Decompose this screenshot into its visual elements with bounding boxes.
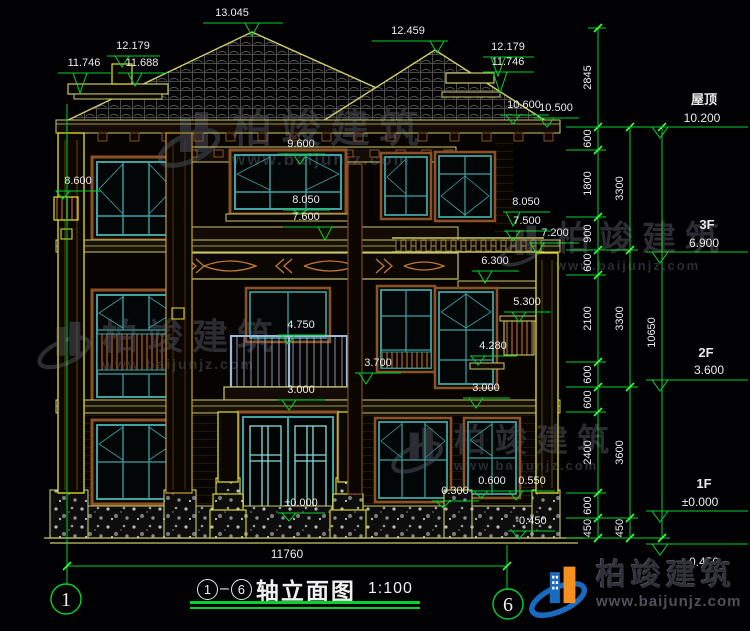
floor-level-marker bbox=[646, 544, 748, 555]
company-name: 柏竣建筑 bbox=[596, 560, 741, 592]
chain-dim: 600 bbox=[582, 129, 594, 147]
elevation-marker: 12.459 bbox=[372, 25, 448, 53]
floor-elevation: ±0.000 bbox=[682, 495, 719, 509]
title-axis-start-bubble: 1 bbox=[197, 579, 218, 600]
elevation-value: 12.179 bbox=[116, 40, 150, 52]
window-1f-center-right bbox=[375, 418, 451, 502]
elevation-value: 13.045 bbox=[215, 7, 249, 19]
title-dash: – bbox=[220, 580, 229, 598]
elevation-value: 7.200 bbox=[541, 227, 569, 239]
elevation-value: 7.600 bbox=[292, 211, 320, 223]
elevation-value: 5.300 bbox=[513, 296, 541, 308]
chain-dim: 2845 bbox=[582, 65, 594, 89]
chain-dim: 1800 bbox=[582, 171, 594, 195]
elevation-value: 0.300 bbox=[441, 485, 469, 497]
elevation-value: 9.600 bbox=[287, 138, 315, 150]
elevation-canvas: 13.04512.45912.17911.74611.68812.17911.7… bbox=[0, 0, 750, 631]
elevation-value: 12.459 bbox=[391, 25, 425, 37]
floor-label: 屋顶 bbox=[691, 92, 717, 107]
company-logo: 柏竣建筑 www.baijunjz.com bbox=[528, 560, 741, 628]
overall-dim: 11760 bbox=[271, 547, 304, 561]
chain-dim: 600 bbox=[582, 390, 594, 408]
elevation-value: 4.750 bbox=[287, 319, 315, 331]
door-pilaster-left bbox=[218, 412, 238, 482]
chain-dim: 450 bbox=[614, 519, 626, 537]
chain-dim: 600 bbox=[582, 365, 594, 383]
elevation-value: 8.050 bbox=[512, 196, 540, 208]
elevation-value: 0.550 bbox=[518, 475, 546, 487]
elevation-value: -0.450 bbox=[515, 515, 546, 527]
elevation-value: 4.280 bbox=[479, 340, 507, 352]
floor-elevation: 10.200 bbox=[684, 111, 721, 125]
window-3f-center-right bbox=[381, 153, 431, 219]
elevation-value: 3.000 bbox=[472, 382, 500, 394]
chain-dim: 2100 bbox=[582, 306, 594, 330]
chain-dim: 10650 bbox=[646, 317, 658, 348]
floor-label: 3F bbox=[699, 217, 714, 232]
floor-elevation: 6.900 bbox=[689, 236, 719, 250]
title-axis-end-bubble: 6 bbox=[231, 579, 252, 600]
ground-line bbox=[44, 538, 584, 543]
chain-dim: 600 bbox=[582, 496, 594, 514]
elevation-value: 8.050 bbox=[292, 194, 320, 206]
elevation-value: 7.500 bbox=[513, 215, 541, 227]
floor-level-marker bbox=[646, 511, 748, 522]
axis-number: 1 bbox=[61, 589, 71, 611]
ornament-band bbox=[178, 253, 458, 279]
elevation-value: 6.300 bbox=[481, 255, 509, 267]
side-ledge bbox=[54, 197, 78, 220]
floor-level-marker bbox=[646, 380, 748, 391]
elevation-value: 11.746 bbox=[68, 57, 101, 69]
chain-dim: 600 bbox=[582, 253, 594, 271]
elevation-value: 3.000 bbox=[287, 384, 315, 396]
window-3f-right-tower bbox=[435, 152, 495, 221]
chain-dim: 3600 bbox=[614, 440, 626, 464]
floor-level-marker bbox=[646, 252, 748, 263]
axis-bubble: 1 bbox=[51, 584, 81, 614]
elevation-value: 3.700 bbox=[364, 357, 392, 369]
title-underline bbox=[190, 601, 420, 604]
floor-label: 2F bbox=[698, 345, 713, 360]
chain-dim: 2400 bbox=[582, 440, 594, 464]
chain-dim: 3300 bbox=[614, 306, 626, 330]
floor-elevation: 3.600 bbox=[694, 363, 724, 377]
building-facade bbox=[44, 32, 584, 543]
chain-dim: 3300 bbox=[614, 176, 626, 200]
floor-cornice-3f bbox=[56, 240, 560, 252]
elevation-marker: 13.045 bbox=[203, 7, 283, 36]
axis-bubble: 6 bbox=[493, 589, 523, 619]
elevation-value: 11.688 bbox=[126, 57, 159, 69]
elevation-value: 8.600 bbox=[64, 175, 92, 187]
company-url: www.baijunjz.com bbox=[596, 593, 741, 610]
pilaster-left-mid bbox=[166, 133, 192, 493]
chain-dim: 900 bbox=[582, 224, 594, 242]
elevation-value: 10.500 bbox=[539, 102, 573, 114]
pilaster-right-edge bbox=[536, 253, 558, 493]
elevation-value: 12.179 bbox=[491, 41, 525, 53]
pilaster-left-edge bbox=[54, 133, 84, 493]
title-underline-2 bbox=[190, 607, 420, 609]
elevation-value: 10.600 bbox=[507, 99, 541, 111]
company-logo-icon bbox=[528, 560, 590, 628]
cad-elevation-drawing: 13.04512.45912.17911.74611.68812.17911.7… bbox=[0, 0, 750, 631]
floor-label: 1F bbox=[696, 476, 711, 491]
chain-dim: 450 bbox=[582, 519, 594, 537]
window-2f-right-tower bbox=[435, 288, 497, 388]
pilaster-center-right bbox=[348, 164, 362, 494]
elevation-value: ±0.000 bbox=[284, 497, 318, 509]
elevation-value: 0.600 bbox=[478, 475, 506, 487]
axis-number: 6 bbox=[503, 594, 513, 616]
elevation-value: 11.746 bbox=[492, 56, 525, 68]
title-scale: 1:100 bbox=[368, 580, 413, 598]
